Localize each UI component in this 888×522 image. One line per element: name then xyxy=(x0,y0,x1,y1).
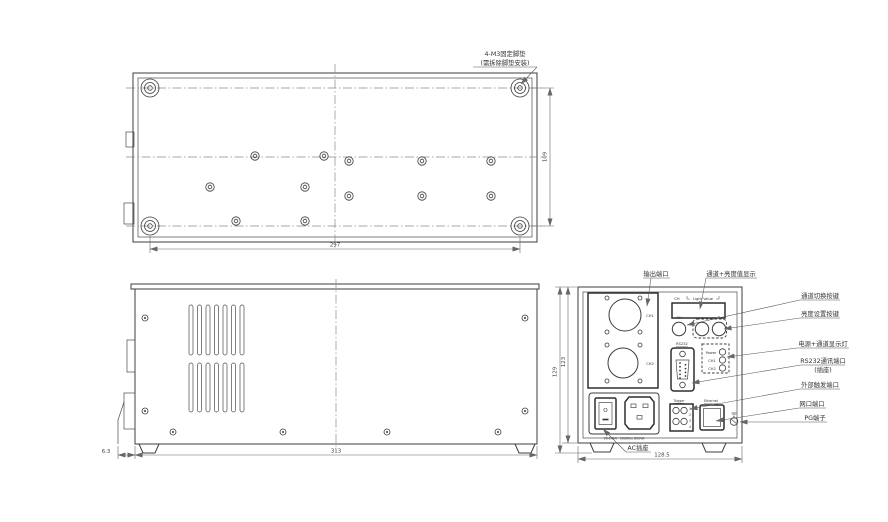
switch-o-label: O xyxy=(603,408,608,414)
indicator-lights: Power CH1 CH2 xyxy=(702,344,729,373)
ground-icon xyxy=(732,413,737,417)
rs232-connector: RS232 xyxy=(671,342,694,391)
dim-rear-height-body: 123 xyxy=(561,357,567,367)
side-bracket xyxy=(118,340,135,444)
trigger-pin3: 3 xyxy=(689,419,691,423)
out-ch1-label: CH1 xyxy=(646,314,654,318)
ind-ch1-label: CH1 xyxy=(708,359,716,363)
dim-side-foot: 6.3 xyxy=(102,449,111,455)
foot xyxy=(702,443,726,452)
foot xyxy=(515,444,535,453)
foot xyxy=(590,443,614,452)
output-panel: CH1 CH2 xyxy=(588,293,658,388)
trigger-terminal: Trigger 1 2 3 4 xyxy=(670,399,693,431)
channel-switch-button xyxy=(672,322,685,335)
note-line1: 4-M3固定脚垫 xyxy=(485,49,527,58)
dsub-shell xyxy=(676,360,689,379)
ch1-led xyxy=(719,357,725,363)
callout-channel-switch: 通道切换按键 xyxy=(801,291,839,300)
rs232-label: RS232 xyxy=(676,342,688,346)
trigger-pin2: 2 xyxy=(689,413,691,417)
callout-output-port: 输出端口 xyxy=(643,269,668,278)
callout-indicator: 电源+通道显示灯 xyxy=(798,339,848,348)
brightness-plus-button xyxy=(712,322,725,335)
side-screw-holes xyxy=(142,315,528,435)
note-line2: (需拆除脚垫安装) xyxy=(481,58,530,67)
foot xyxy=(139,444,159,453)
trigger-label: Trigger xyxy=(673,399,686,403)
ind-power-label: Power xyxy=(706,351,717,355)
output-ch1-port xyxy=(609,299,641,331)
power-led xyxy=(719,349,725,355)
callout-rs232-line2: (插座) xyxy=(814,365,832,374)
ch2-led xyxy=(719,365,725,371)
ac-rating-label: 90-240V~50/60Hz 800VA xyxy=(604,437,645,441)
display-ch-label: CH xyxy=(674,297,680,301)
ethernet-label: Ethernet xyxy=(704,399,718,403)
callout-display: 通道+亮度值显示 xyxy=(706,269,755,278)
output-ch2-port xyxy=(608,348,638,378)
iec-socket xyxy=(625,397,654,429)
dsub-pins xyxy=(679,362,686,379)
drawing-svg: 297 109 4-M3固定脚垫 (需拆除脚垫安装) xyxy=(0,0,888,522)
callout-lan: 网口端口 xyxy=(799,399,824,408)
callout-pg: PG端子 xyxy=(804,413,825,422)
trigger-pin4: 4 xyxy=(689,425,691,429)
brightness-minus-button xyxy=(695,322,708,335)
power-switch: O xyxy=(595,398,616,429)
bottom-view: 297 109 4-M3固定脚垫 (需拆除脚垫安装) xyxy=(124,49,554,253)
display-value-label: Light Value xyxy=(693,297,714,301)
dim-side-length: 313 xyxy=(331,449,341,455)
ind-ch2-label: CH2 xyxy=(708,367,716,371)
side-view: 313 6.3 xyxy=(102,279,539,459)
callout-trigger: 外部触发端口 xyxy=(801,380,839,389)
callout-brightness-set: 亮度设置按键 xyxy=(801,309,839,318)
dim-bottom-width: 297 xyxy=(330,243,340,249)
dim-rear-width: 128.5 xyxy=(654,453,669,459)
ac-inlet-module: O 90-240V~50/60Hz 800VA xyxy=(589,393,659,441)
dim-rear-height-total: 129 xyxy=(553,366,559,377)
out-ch2-label: CH2 xyxy=(646,362,654,366)
dim-bottom-height: 109 xyxy=(543,151,549,162)
vent-slots xyxy=(189,305,244,412)
engineering-drawing: 297 109 4-M3固定脚垫 (需拆除脚垫安装) xyxy=(0,0,888,522)
callout-ac: AC插座 xyxy=(627,443,648,452)
rear-view: CH1 CH2 CH Light Value CH - + RS232 xyxy=(553,287,743,463)
bottom-screw-holes xyxy=(206,152,495,225)
knob-ch-label: CH xyxy=(676,316,682,320)
callout-rs232-line1: RS232通讯端口 xyxy=(800,356,846,365)
